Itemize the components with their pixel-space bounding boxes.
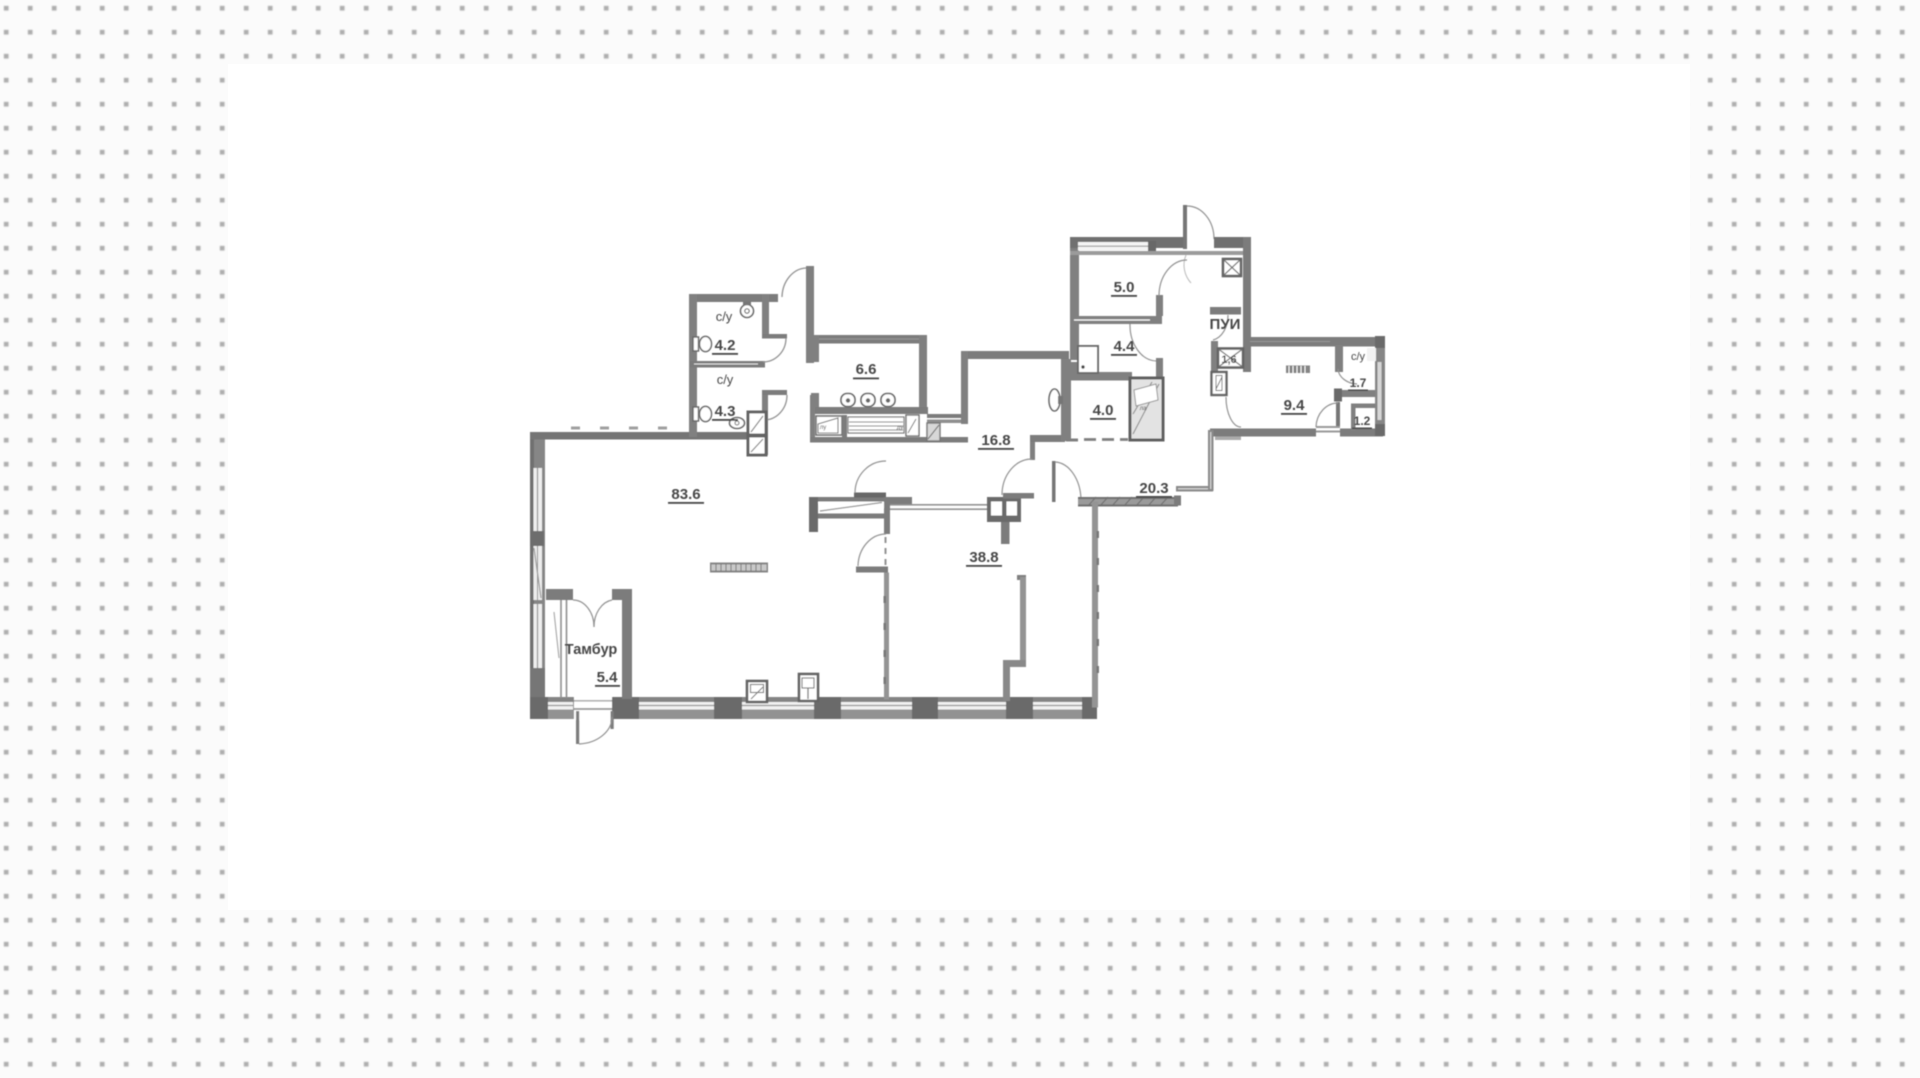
svg-text:с/у: с/у (716, 309, 733, 324)
svg-text:83.6: 83.6 (671, 486, 700, 503)
svg-text:6.6: 6.6 (856, 361, 877, 378)
svg-text:ду: ду (897, 425, 904, 431)
svg-text:4.3: 4.3 (715, 403, 736, 420)
svg-text:38.8: 38.8 (969, 549, 998, 566)
svg-text:лу: лу (820, 425, 827, 431)
svg-text:1.2: 1.2 (1354, 414, 1371, 428)
svg-text:ла: ла (1140, 406, 1148, 412)
svg-text:4.2: 4.2 (715, 337, 736, 354)
svg-text:Тамбур: Тамбур (565, 642, 618, 658)
svg-text:с/у: с/у (717, 372, 734, 387)
svg-text:ПУИ: ПУИ (1210, 316, 1241, 333)
svg-text:20.3: 20.3 (1139, 480, 1168, 497)
svg-text:5.4: 5.4 (597, 669, 619, 686)
svg-text:16.8: 16.8 (981, 432, 1010, 449)
svg-text:1.7: 1.7 (1350, 376, 1367, 390)
svg-text:5.0: 5.0 (1114, 279, 1135, 296)
svg-text:1,6: 1,6 (1221, 354, 1236, 366)
svg-text:9.4: 9.4 (1284, 397, 1306, 414)
svg-text:4.4: 4.4 (1114, 338, 1136, 355)
svg-text:4.0: 4.0 (1093, 402, 1114, 419)
svg-text:с/у: с/у (1351, 351, 1366, 363)
